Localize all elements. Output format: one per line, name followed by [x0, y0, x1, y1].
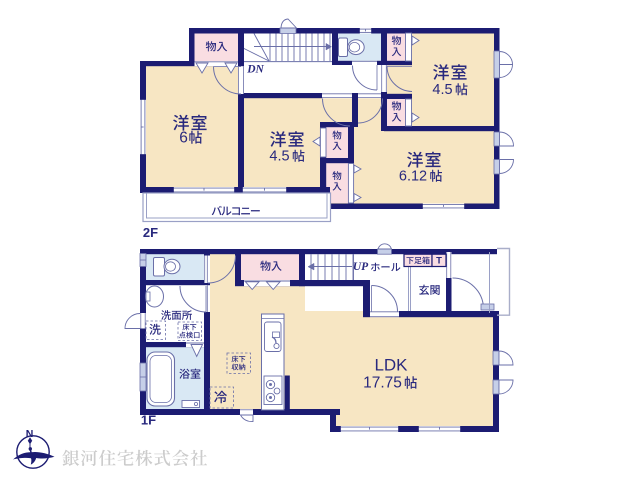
svg-text:T: T	[436, 256, 442, 267]
svg-text:6.12: 6.12	[399, 169, 427, 185]
svg-text:UP: UP	[353, 261, 369, 273]
svg-text:4.5: 4.5	[432, 82, 452, 98]
svg-text:LDK: LDK	[374, 356, 408, 375]
svg-text:17.75: 17.75	[363, 375, 402, 392]
svg-text:2F: 2F	[143, 225, 158, 240]
svg-text:6: 6	[179, 130, 188, 147]
svg-text:1F: 1F	[141, 413, 156, 428]
svg-text:DN: DN	[246, 64, 264, 76]
svg-text:4.5: 4.5	[269, 149, 289, 165]
